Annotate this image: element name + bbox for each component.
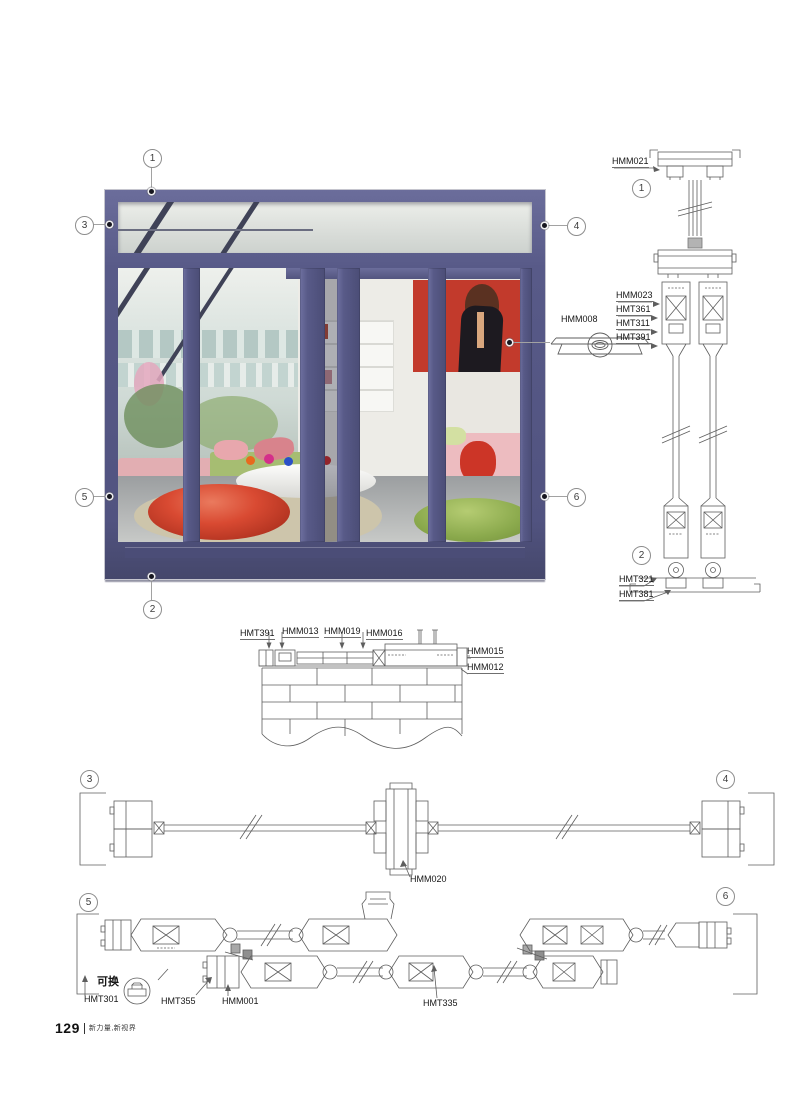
callout-dot xyxy=(107,494,112,499)
footer-slogan: 新力量,新视界 xyxy=(89,1024,136,1033)
sill-section-drawing xyxy=(235,622,525,762)
leader-line xyxy=(512,342,550,343)
cup xyxy=(284,457,293,466)
transom-glass xyxy=(118,202,532,253)
callout-plan-top-left: 3 xyxy=(80,770,99,789)
label-sill-right-1: HMM015 xyxy=(467,646,504,658)
label-sill-3: HMM019 xyxy=(324,626,361,638)
exterior-mullion-line xyxy=(212,202,268,253)
leader-line xyxy=(547,496,567,497)
label-sill-2: HMM013 xyxy=(282,626,319,638)
label-replaceable-note: 可换 xyxy=(97,976,119,989)
callout-plan-bottom-left: 5 xyxy=(79,893,98,912)
frame-stile xyxy=(520,268,532,542)
callout-photo-left-mid: 5 xyxy=(75,488,94,507)
frame-stile xyxy=(183,268,200,542)
callout-dot xyxy=(107,222,112,227)
label-plan-bottom-4: HMT335 xyxy=(423,998,458,1008)
glazing-bar xyxy=(118,229,313,231)
callout-photo-top: 1 xyxy=(143,149,162,168)
leader-line xyxy=(151,167,152,190)
label-transom-1: HMT361 xyxy=(616,304,651,316)
painting-figure-skin xyxy=(477,312,484,348)
scene-buildings xyxy=(118,330,318,358)
callout-dot xyxy=(149,189,154,194)
exterior-mullion-line xyxy=(124,202,181,253)
label-head-frame: HMM021 xyxy=(612,156,649,168)
label-plan-bottom-2: HMT355 xyxy=(161,996,196,1006)
callout-photo-bottom: 2 xyxy=(143,600,162,619)
callout-vsection-bottom: 2 xyxy=(632,546,651,565)
callout-vsection-top: 1 xyxy=(632,179,651,198)
label-sill-1: HMT391 xyxy=(240,628,275,640)
leader-line xyxy=(547,225,567,226)
label-sill-right-2: HMM012 xyxy=(467,662,504,674)
scene-red-pouf xyxy=(148,484,290,540)
catalog-page: 1 2 3 4 5 6 HMM008 xyxy=(0,0,800,1093)
label-plan-bottom-1: HMT301 xyxy=(84,994,119,1004)
label-glazing-strip: HMM023 xyxy=(616,290,653,302)
label-transom-3: HMT391 xyxy=(616,332,651,344)
label-plan-bottom-3: HMM001 xyxy=(222,996,259,1006)
plan-section-top-drawing xyxy=(68,765,780,887)
window-photo xyxy=(105,190,545,579)
label-bottom-track-2: HMT381 xyxy=(619,589,654,601)
main-glass xyxy=(118,268,532,542)
callout-dot xyxy=(149,574,154,579)
leader-line xyxy=(151,578,152,600)
cup xyxy=(246,456,255,465)
callout-photo-left-top: 3 xyxy=(75,216,94,235)
photo-shadow xyxy=(105,579,545,582)
callout-photo-right-top: 4 xyxy=(567,217,586,236)
page-footer: 129 新力量,新视界 xyxy=(55,1021,136,1035)
frame-stile xyxy=(428,268,446,542)
callout-plan-top-right: 4 xyxy=(716,770,735,789)
callout-dot xyxy=(507,340,512,345)
bottom-track xyxy=(125,547,525,558)
frame-stile xyxy=(337,268,360,542)
scene-pillow xyxy=(214,440,248,460)
label-handle: HMM008 xyxy=(561,314,598,324)
frame-stile xyxy=(300,268,325,542)
callout-photo-right-mid: 6 xyxy=(567,488,586,507)
label-transom-2: HMT311 xyxy=(616,318,650,330)
callout-dot xyxy=(542,223,547,228)
label-mullion: HMM020 xyxy=(410,874,447,884)
footer-divider xyxy=(84,1023,85,1034)
callout-plan-bottom-right: 6 xyxy=(716,887,735,906)
page-number: 129 xyxy=(55,1021,80,1035)
label-bottom-track-1: HMT321 xyxy=(619,574,654,586)
callout-dot xyxy=(542,494,547,499)
meeting-stile-gap xyxy=(325,268,337,542)
label-sill-4: HMM016 xyxy=(366,628,403,640)
cup xyxy=(264,454,274,464)
